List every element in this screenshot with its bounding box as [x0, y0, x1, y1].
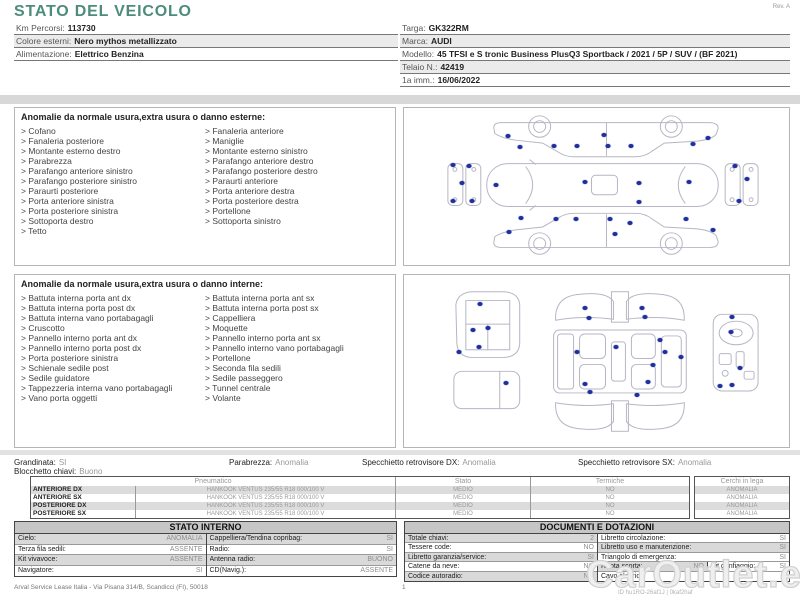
anomaly-item: > Cofano: [21, 126, 197, 136]
anomaly-item: > Portellone: [205, 206, 381, 216]
anomaly-item: > Sottoporta sinistro: [205, 216, 381, 226]
tire-cell: POSTERIORE SX: [31, 510, 136, 518]
summary-grandinata: Grandinata:SI: [14, 458, 66, 467]
kv-value: ASSENTE: [170, 555, 203, 565]
cerchi-cell: ANOMALIA: [695, 502, 789, 510]
damage-dot: [651, 363, 656, 367]
damage-dot: [494, 183, 499, 187]
damage-dot: [582, 306, 587, 310]
damage-dot: [505, 134, 510, 138]
kv-pair: Cappelliera/Tendina copribag:SI: [210, 534, 394, 544]
tire-cell: HANKOOK VENTUS 235/55 R18 000/100 V: [136, 502, 396, 510]
damage-dot: [608, 217, 613, 221]
tire-cell: MEDIO: [396, 502, 531, 510]
kv-label: Cielo:: [18, 534, 36, 544]
kv-row: Totale chiavi:2: [405, 534, 597, 543]
cerchi-row: ANOMALIA: [695, 486, 789, 494]
exterior-anomalies-box: Anomalie da normale usura,extra usura o …: [14, 107, 396, 266]
damage-dot: [602, 133, 607, 137]
anomaly-item: > Parafango anteriore sinistro: [21, 166, 197, 176]
tire-cell: HANKOOK VENTUS 235/55 R18 000/100 V: [136, 494, 396, 502]
kv-label: Antenna radio:: [210, 555, 256, 565]
kv-label: Tessere code:: [408, 543, 452, 551]
anomaly-item: > Pannello interno porta ant dx: [21, 333, 197, 343]
tires-col-termiche: Termiche: [531, 477, 689, 486]
damage-dot: [684, 217, 689, 221]
damage-dot: [586, 316, 591, 320]
anomaly-item: > Maniglie: [205, 136, 381, 146]
anomaly-item: > Schienale sedile post: [21, 363, 197, 373]
kv-label: Cappelliera/Tendina copribag:: [210, 534, 303, 544]
summary-label: Specchietto retrovisore DX:: [362, 458, 459, 467]
cerchi-row: ANOMALIA: [695, 502, 789, 510]
anomaly-item: > Battuta interna vano portabagagli: [21, 313, 197, 323]
anomaly-item: > Porta posteriore sinistra: [21, 206, 197, 216]
damage-dot: [686, 180, 691, 184]
exterior-anomalies-title: Anomalie da normale usura,extra usura o …: [21, 112, 389, 122]
damage-dot: [679, 355, 684, 359]
summary-value: Buono: [79, 467, 102, 476]
field-value: 113730: [68, 23, 96, 33]
kv-row: Cielo:ANOMALIA: [15, 534, 206, 545]
kv-label: Terza fila sedili:: [18, 545, 66, 555]
anomaly-item: > Battuta interna porta post dx: [21, 303, 197, 313]
kv-pair: Totale chiavi:2: [408, 534, 594, 542]
anomaly-item: > Portellone: [205, 353, 381, 363]
kv-value: SI: [779, 534, 786, 542]
damage-dot: [471, 328, 476, 332]
anomaly-item: > Montante esterno sinistro: [205, 146, 381, 156]
kv-value: NO: [584, 543, 595, 551]
anomaly-item: > Parafango posteriore sinistro: [21, 176, 197, 186]
kv-label: CD(Navig.):: [210, 566, 247, 577]
field-label: Modello:: [402, 49, 434, 59]
interior-damage-dots: [404, 275, 789, 447]
tire-cell: MEDIO: [396, 510, 531, 518]
interior-damage-diagram: [403, 274, 790, 448]
damage-dot: [663, 350, 668, 354]
summary-value: Anomalia: [275, 458, 308, 467]
anomaly-item: > Sedile passeggero: [205, 373, 381, 383]
tire-cell: HANKOOK VENTUS 235/55 R18 000/100 V: [136, 486, 396, 494]
kv-pair: Catene da neve:NO: [408, 562, 594, 570]
kv-value: SI: [386, 534, 393, 544]
stato-interno-left-col: Cielo:ANOMALIATerza fila sedili:ASSENTEK…: [15, 534, 206, 576]
kv-row: Codice autoradio:NO: [405, 572, 597, 581]
summary-value: SI: [59, 458, 67, 467]
cerchi-row: ANOMALIA: [695, 494, 789, 502]
damage-dot: [636, 200, 641, 204]
summary-specchietto-dx: Specchietto retrovisore DX:Anomalia: [362, 458, 496, 467]
anomaly-item: > Fanaleria anteriore: [205, 126, 381, 136]
kv-label: Libretto uso e manutenzione:: [601, 543, 691, 551]
anomaly-item: > Vano porta oggetti: [21, 393, 197, 403]
stato-interno-title: STATO INTERNO: [15, 522, 396, 534]
damage-dot: [738, 366, 743, 370]
field-label: Targa:: [402, 23, 426, 33]
damage-dot: [575, 350, 580, 354]
anomaly-item: > Porta posteriore sinistra: [21, 353, 197, 363]
damage-dot: [639, 306, 644, 310]
kv-row: Libretto garanzia/service:SI: [405, 553, 597, 562]
kv-label: Codice autoradio:: [408, 572, 463, 581]
damage-dot: [744, 177, 749, 181]
tires-table-body: ANTERIORE DXHANKOOK VENTUS 235/55 R18 00…: [31, 486, 689, 518]
anomaly-item: > Paraurti anteriore: [205, 176, 381, 186]
damage-dot: [613, 345, 618, 349]
kv-value: SI: [779, 543, 786, 551]
kv-pair: Cielo:ANOMALIA: [18, 534, 203, 544]
field-label: Km Percorsi:: [16, 23, 65, 33]
kv-label: Kit vivavoce:: [18, 555, 57, 565]
section-divider-top: [0, 95, 800, 104]
damage-dot: [503, 381, 508, 385]
cerchi-cell: ANOMALIA: [695, 494, 789, 502]
field-value: 16/06/2022: [438, 75, 481, 85]
kv-pair: Navigatore:SI: [18, 566, 203, 577]
damage-dot: [456, 350, 461, 354]
summary-blocchetto-chiavi: Blocchetto chiavi:Buono: [14, 467, 102, 476]
field-label: Telaio N.:: [402, 62, 437, 72]
damage-dot: [459, 181, 464, 185]
tire-cell: MEDIO: [396, 494, 531, 502]
kv-row: Libretto uso e manutenzione:SI: [598, 543, 789, 552]
kv-pair: Libretto circolazione:SI: [601, 534, 786, 542]
tire-cell: MEDIO: [396, 486, 531, 494]
tire-cell: NO: [531, 510, 689, 518]
kv-label: Catene da neve:: [408, 562, 459, 570]
header-field: Colore esterni:Nero mythos metallizzato: [14, 35, 398, 48]
interior-anomalies-left-col: > Battuta interna porta ant dx> Battuta …: [21, 293, 205, 403]
tire-cell: NO: [531, 502, 689, 510]
field-value: 45 TFSI e S tronic Business PlusQ3 Sport…: [437, 49, 737, 59]
header-field: Modello:45 TFSI e S tronic Business Plus…: [400, 48, 790, 61]
tire-row: POSTERIORE SXHANKOOK VENTUS 235/55 R18 0…: [31, 510, 689, 518]
tire-row: ANTERIORE DXHANKOOK VENTUS 235/55 R18 00…: [31, 486, 689, 494]
tire-cell: ANTERIORE SX: [31, 494, 136, 502]
damage-dot: [469, 199, 474, 203]
tires-table-header: Pneumatico Stato Termiche: [31, 477, 689, 486]
cerchi-table-body: ANOMALIAANOMALIAANOMALIAANOMALIA: [695, 486, 789, 518]
damage-dot: [629, 144, 634, 148]
damage-dot: [506, 230, 511, 234]
kv-label: Radio:: [210, 545, 230, 555]
kv-label: Totale chiavi:: [408, 534, 448, 542]
kv-pair: Kit vivavoce:ASSENTE: [18, 555, 203, 565]
kv-label: Libretto circolazione:: [601, 534, 665, 542]
stato-interno-table: STATO INTERNO Cielo:ANOMALIATerza fila s…: [14, 521, 397, 577]
kv-row: Radio:SI: [207, 545, 397, 556]
interior-anomalies-right-col: > Battuta interna porta ant sx> Battuta …: [205, 293, 389, 403]
kv-value: ASSENTE: [170, 545, 203, 555]
anomaly-item: > Seconda fila sedili: [205, 363, 381, 373]
damage-dot: [613, 232, 618, 236]
anomaly-item: > Porta anteriore destra: [205, 186, 381, 196]
kv-pair: Libretto uso e manutenzione:SI: [601, 543, 786, 551]
anomaly-item: > Parafango posteriore destro: [205, 166, 381, 176]
tire-row: ANTERIORE SXHANKOOK VENTUS 235/55 R18 00…: [31, 494, 689, 502]
kv-value: 2: [590, 534, 594, 542]
anomaly-item: > Parabrezza: [21, 156, 197, 166]
anomaly-item: > Parafango anteriore destro: [205, 156, 381, 166]
stato-interno-right-col: Cappelliera/Tendina copribag:SIRadio:SIA…: [206, 534, 397, 576]
kv-pair: Libretto garanzia/service:SI: [408, 553, 594, 561]
cerchi-table: Cerchi in lega ANOMALIAANOMALIAANOMALIAA…: [694, 476, 790, 519]
damage-dot: [588, 390, 593, 394]
damage-dot: [736, 199, 741, 203]
field-label: Colore esterni:: [16, 36, 71, 46]
documenti-left-col: Totale chiavi:2Tessere code:NOLibretto g…: [405, 534, 597, 581]
anomaly-item: > Sedile guidatore: [21, 373, 197, 383]
anomaly-item: > Montante esterno destro: [21, 146, 197, 156]
damage-dot: [636, 181, 641, 185]
cerchi-cell: ANOMALIA: [695, 510, 789, 518]
summary-parabrezza: Parabrezza:Anomalia: [229, 458, 309, 467]
tires-table: Pneumatico Stato Termiche ANTERIORE DXHA…: [30, 476, 690, 519]
anomaly-item: > Porta posteriore destra: [205, 196, 381, 206]
damage-dot: [730, 315, 735, 319]
header-field: Km Percorsi:113730: [14, 22, 398, 35]
kv-pair: Terza fila sedili:ASSENTE: [18, 545, 203, 555]
kv-value: SI: [196, 566, 203, 577]
damage-dot: [606, 144, 611, 148]
exterior-anomalies-left-col: > Cofano> Fanaleria posteriore> Montante…: [21, 126, 205, 236]
kv-row: Libretto circolazione:SI: [598, 534, 789, 543]
tires-col-pneumatico: Pneumatico: [31, 477, 396, 486]
tire-row: POSTERIORE DXHANKOOK VENTUS 235/55 R18 0…: [31, 502, 689, 510]
cerchi-col-header: Cerchi in lega: [695, 477, 789, 486]
kv-pair: Antenna radio:BUONO: [210, 555, 394, 565]
damage-dot: [718, 384, 723, 388]
kv-value: ASSENTE: [360, 566, 393, 577]
anomaly-item: > Cappelliera: [205, 313, 381, 323]
exterior-anomalies-right-col: > Fanaleria anteriore> Maniglie> Montant…: [205, 126, 389, 236]
cerchi-table-header: Cerchi in lega: [695, 477, 789, 486]
revision-label: Rev. A: [773, 4, 790, 10]
damage-dot: [628, 221, 633, 225]
damage-dot: [575, 144, 580, 148]
kv-label: Navigatore:: [18, 566, 54, 577]
damage-dot: [690, 142, 695, 146]
damage-dot: [517, 145, 522, 149]
field-label: Marca:: [402, 36, 428, 46]
interior-anomalies-title: Anomalie da normale usura,extra usura o …: [21, 279, 389, 289]
kv-label: Libretto garanzia/service:: [408, 553, 486, 561]
field-value: GK322RM: [429, 23, 469, 33]
damage-dot: [554, 217, 559, 221]
section-divider-bottom: [0, 450, 800, 455]
summary-label: Blocchetto chiavi:: [14, 467, 76, 476]
header-field: Targa:GK322RM: [400, 22, 790, 35]
summary-value: Anomalia: [462, 458, 495, 467]
summary-specchietto-sx: Specchietto retrovisore SX:Anomalia: [578, 458, 711, 467]
kv-row: CD(Navig.):ASSENTE: [207, 566, 397, 577]
damage-dot: [711, 228, 716, 232]
damage-dot: [730, 383, 735, 387]
interior-anomalies-box: Anomalie da normale usura,extra usura o …: [14, 274, 396, 448]
kv-value: ANOMALIA: [166, 534, 202, 544]
damage-dot: [706, 136, 711, 140]
damage-dot: [450, 163, 455, 167]
damage-dot: [646, 380, 651, 384]
kv-pair: Codice autoradio:NO: [408, 572, 594, 581]
kv-row: Terza fila sedili:ASSENTE: [15, 545, 206, 556]
footer-page-number: 1: [402, 584, 406, 591]
cerchi-row: ANOMALIA: [695, 510, 789, 518]
field-label: 1a imm.:: [402, 75, 435, 85]
damage-dot: [733, 164, 738, 168]
page-title: STATO DEL VEICOLO: [14, 3, 192, 21]
kv-row: Catene da neve:NO: [405, 562, 597, 571]
damage-dot: [450, 199, 455, 203]
damage-dot: [658, 338, 663, 342]
kv-row: Navigatore:SI: [15, 566, 206, 577]
anomaly-item: > Porta anteriore sinistra: [21, 196, 197, 206]
damage-dot: [552, 144, 557, 148]
kv-pair: Tessere code:NO: [408, 543, 594, 551]
vehicle-info-left: Km Percorsi:113730Colore esterni:Nero my…: [14, 22, 398, 61]
field-label: Alimentazione:: [16, 49, 72, 59]
tire-cell: ANTERIORE DX: [31, 486, 136, 494]
kv-row: Antenna radio:BUONO: [207, 555, 397, 566]
field-value: Elettrico Benzina: [75, 49, 144, 59]
vehicle-status-report: STATO DEL VEICOLO Rev. A Km Percorsi:113…: [0, 0, 800, 600]
footer-company: Arval Service Lease Italia - Via Pisana …: [14, 584, 208, 591]
vehicle-info-right: Targa:GK322RMMarca:AUDIModello:45 TFSI e…: [400, 22, 790, 87]
summary-label: Grandinata:: [14, 458, 56, 467]
kv-pair: CD(Navig.):ASSENTE: [210, 566, 394, 577]
header-field: Telaio N.:42419: [400, 61, 790, 74]
damage-dot: [519, 216, 524, 220]
damage-dot: [476, 345, 481, 349]
anomaly-item: > Battuta interna porta post sx: [205, 303, 381, 313]
kv-row: Cappelliera/Tendina copribag:SI: [207, 534, 397, 545]
document-id: ID hu1RO-26af1J | 0kaf2haf: [618, 590, 693, 596]
damage-dot: [574, 217, 579, 221]
anomaly-item: > Volante: [205, 393, 381, 403]
tire-cell: HANKOOK VENTUS 235/55 R18 000/100 V: [136, 510, 396, 518]
tire-cell: POSTERIORE DX: [31, 502, 136, 510]
tire-cell: NO: [531, 494, 689, 502]
anomaly-item: > Cruscotto: [21, 323, 197, 333]
damage-dot: [582, 180, 587, 184]
tire-cell: NO: [531, 486, 689, 494]
anomaly-item: > Tappezzeria interna vano portabagagli: [21, 383, 197, 393]
anomaly-item: > Pannello interno vano portabagagli: [205, 343, 381, 353]
anomaly-item: > Moquette: [205, 323, 381, 333]
anomaly-item: > Sottoporta destro: [21, 216, 197, 226]
kv-row: Tessere code:NO: [405, 543, 597, 552]
exterior-damage-dots: [404, 108, 789, 265]
field-value: Nero mythos metallizzato: [74, 36, 177, 46]
damage-dot: [477, 302, 482, 306]
header-field: Marca:AUDI: [400, 35, 790, 48]
field-value: 42419: [440, 62, 464, 72]
cerchi-cell: ANOMALIA: [695, 486, 789, 494]
anomaly-item: > Battuta interna porta ant dx: [21, 293, 197, 303]
kv-value: SI: [386, 545, 393, 555]
kv-pair: Radio:SI: [210, 545, 394, 555]
anomaly-item: > Tetto: [21, 226, 197, 236]
anomaly-item: > Pannello interno porta ant sx: [205, 333, 381, 343]
anomaly-item: > Fanaleria posteriore: [21, 136, 197, 146]
summary-label: Specchietto retrovisore SX:: [578, 458, 675, 467]
damage-dot: [635, 393, 640, 397]
field-value: AUDI: [431, 36, 452, 46]
damage-dot: [643, 315, 648, 319]
kv-value: BUONO: [367, 555, 393, 565]
anomaly-item: > Battuta interna porta ant sx: [205, 293, 381, 303]
damage-dot: [467, 164, 472, 168]
anomaly-item: > Tunnel centrale: [205, 383, 381, 393]
damage-dot: [485, 326, 490, 330]
damage-dot: [582, 382, 587, 386]
summary-value: Anomalia: [678, 458, 711, 467]
damage-dot: [729, 330, 734, 334]
header-field: 1a imm.:16/06/2022: [400, 74, 790, 87]
header-field: Alimentazione:Elettrico Benzina: [14, 48, 398, 61]
kv-row: Kit vivavoce:ASSENTE: [15, 555, 206, 566]
summary-label: Parabrezza:: [229, 458, 272, 467]
documenti-title: DOCUMENTI E DOTAZIONI: [405, 522, 789, 534]
tires-col-stato: Stato: [396, 477, 531, 486]
anomaly-item: > Pannello interno porta post dx: [21, 343, 197, 353]
anomaly-item: > Paraurti posteriore: [21, 186, 197, 196]
exterior-damage-diagram: [403, 107, 790, 266]
